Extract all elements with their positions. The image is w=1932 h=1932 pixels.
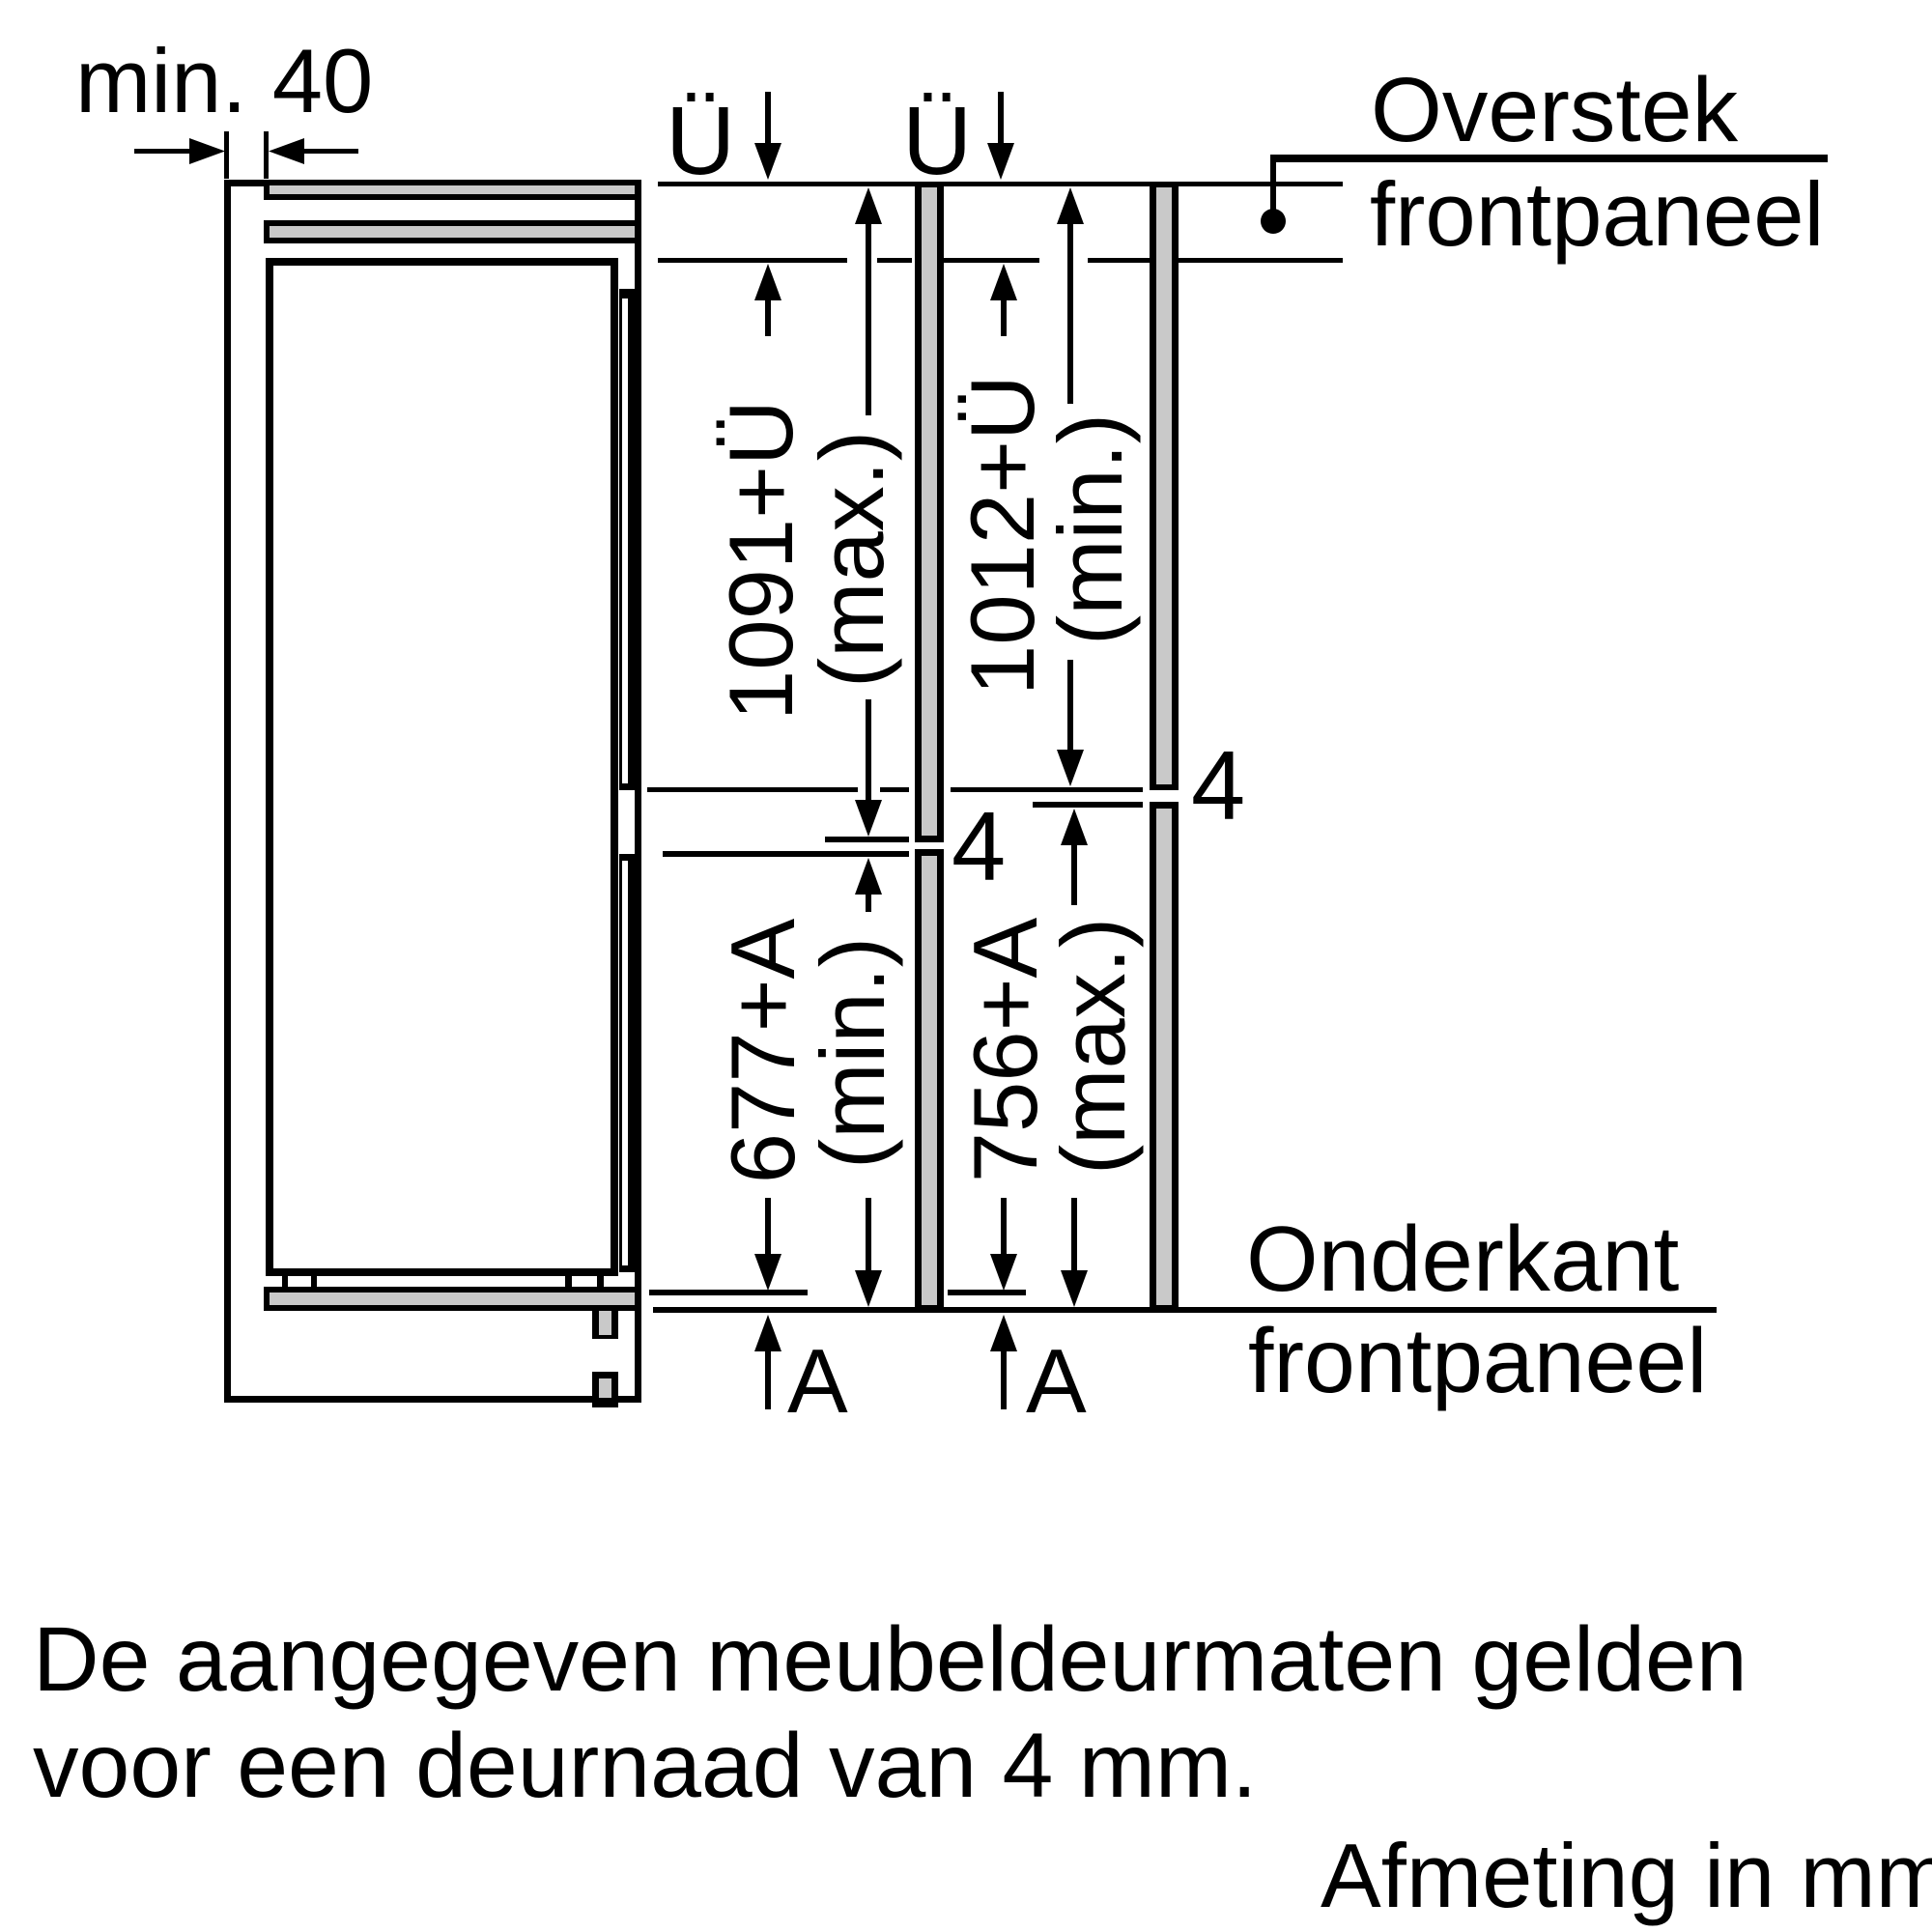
svg-text:(max.): (max.): [1042, 918, 1144, 1175]
svg-text:4: 4: [952, 793, 1006, 901]
svg-text:De aangegeven meubeldeurmaten: De aangegeven meubeldeurmaten gelden: [33, 1608, 1747, 1711]
svg-text:A: A: [787, 1330, 848, 1432]
svg-text:(min.): (min.): [802, 937, 903, 1169]
svg-text:frontpaneel: frontpaneel: [1248, 1310, 1707, 1412]
svg-text:min. 40: min. 40: [75, 30, 373, 131]
svg-text:frontpaneel: frontpaneel: [1370, 163, 1824, 265]
svg-text:Ü: Ü: [666, 87, 735, 195]
svg-text:756+A: 756+A: [954, 917, 1056, 1182]
svg-text:1091+Ü: 1091+Ü: [710, 400, 811, 721]
svg-text:Overstek: Overstek: [1371, 59, 1739, 161]
svg-text:Ü: Ü: [902, 87, 972, 195]
svg-text:voor een deurnaad van 4 mm.: voor een deurnaad van 4 mm.: [33, 1715, 1257, 1817]
svg-text:1012+Ü: 1012+Ü: [952, 375, 1053, 696]
svg-text:4: 4: [1191, 732, 1245, 840]
svg-text:(max.): (max.): [801, 431, 902, 688]
svg-text:Afmeting in mm: Afmeting in mm: [1321, 1825, 1932, 1926]
svg-text:(min.): (min.): [1039, 413, 1141, 645]
svg-text:A: A: [1026, 1330, 1087, 1432]
svg-text:Onderkant: Onderkant: [1246, 1207, 1679, 1311]
svg-text:677+A: 677+A: [712, 918, 813, 1183]
